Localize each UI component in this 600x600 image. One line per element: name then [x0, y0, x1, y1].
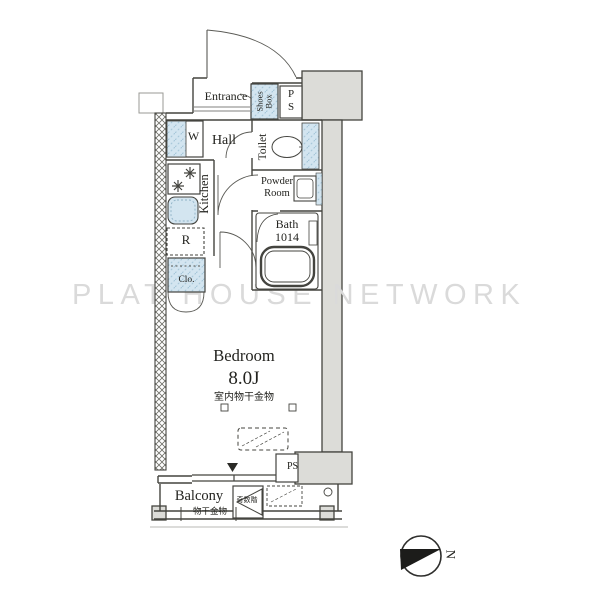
powder-door-arc — [218, 175, 258, 215]
bedroom-label: Bedroom — [204, 347, 284, 365]
refrigerator-label: R — [176, 233, 196, 248]
bedroom-fitting-note: 室内物干金物 — [196, 392, 292, 403]
exterior-notch — [139, 93, 163, 113]
balcony-fitting-note: 物干金物 — [184, 507, 236, 517]
ps-lower-label: PS — [287, 461, 319, 472]
floorplan-drawing: PLAT HOUSE NETWORK — [0, 0, 600, 600]
hanging-hook-right — [289, 404, 296, 411]
bath-size-label: 1014 — [262, 231, 312, 244]
kitchen-label: Kitchen — [197, 152, 213, 236]
hanging-hook-left — [221, 404, 228, 411]
dashed-furniture — [238, 428, 288, 450]
shoes-box-label: Shoes Box — [251, 84, 278, 120]
ps-upper-label: PS — [285, 88, 297, 114]
window-marker-icon — [227, 463, 238, 472]
washer-pan — [167, 121, 186, 157]
north-arrow — [400, 549, 441, 570]
bedroom-door-arc — [220, 232, 256, 268]
structure-column-top-right — [302, 71, 362, 120]
floorplan: PLAT HOUSE NETWORK — [0, 0, 600, 600]
ac-unit-dashed — [267, 486, 302, 506]
drain-circle — [324, 488, 332, 496]
balcony-post-left — [152, 506, 166, 520]
balcony-post-right — [320, 506, 334, 520]
toilet-tank — [302, 123, 319, 169]
powder-room-label: Powder Room — [254, 176, 300, 200]
balcony-label: Balcony — [166, 488, 232, 504]
compass-north-label: N — [443, 546, 458, 562]
kitchen-sink — [168, 197, 198, 224]
entrance-label: Entrance — [198, 90, 254, 103]
toilet-fixture — [272, 123, 319, 169]
compass-icon — [400, 536, 441, 576]
south-window — [192, 475, 278, 481]
bedroom-size-label: 8.0J — [214, 368, 274, 389]
washer-label: W — [186, 130, 201, 143]
stove — [168, 164, 200, 194]
bedroom-items — [221, 404, 296, 450]
toilet-bowl — [272, 137, 302, 158]
toilet-label: Toilet — [255, 124, 271, 170]
hall-label: Hall — [200, 133, 248, 149]
closet-label: Clo. — [170, 275, 203, 286]
wall-hatch-west — [155, 113, 166, 470]
escape-hatch-label: 奇数階 — [234, 497, 260, 505]
